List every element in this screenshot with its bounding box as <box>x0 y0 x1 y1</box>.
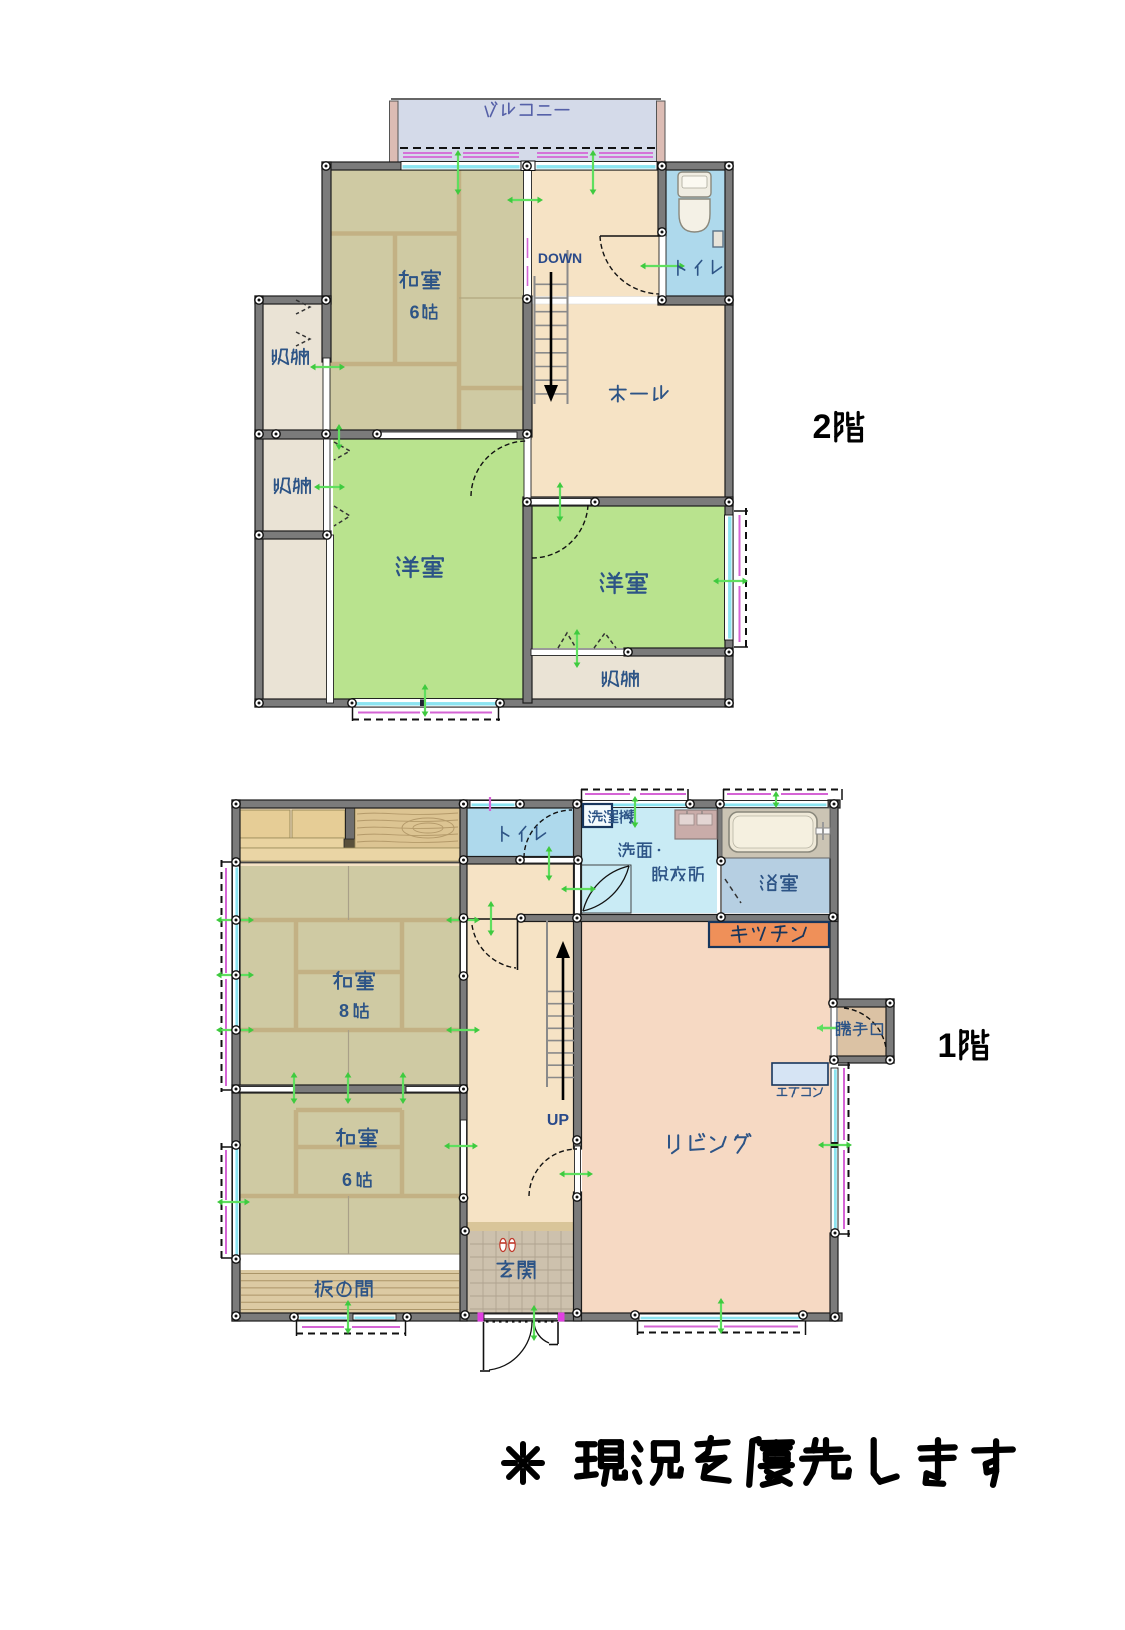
svg-text:1: 1 <box>938 1027 957 1065</box>
svg-text:DOWN: DOWN <box>538 250 582 266</box>
svg-text:UP: UP <box>547 1112 570 1129</box>
svg-text:8: 8 <box>339 1001 349 1021</box>
svg-text:6: 6 <box>409 303 419 323</box>
svg-text:6: 6 <box>342 1170 352 1190</box>
svg-text:2: 2 <box>813 408 832 446</box>
